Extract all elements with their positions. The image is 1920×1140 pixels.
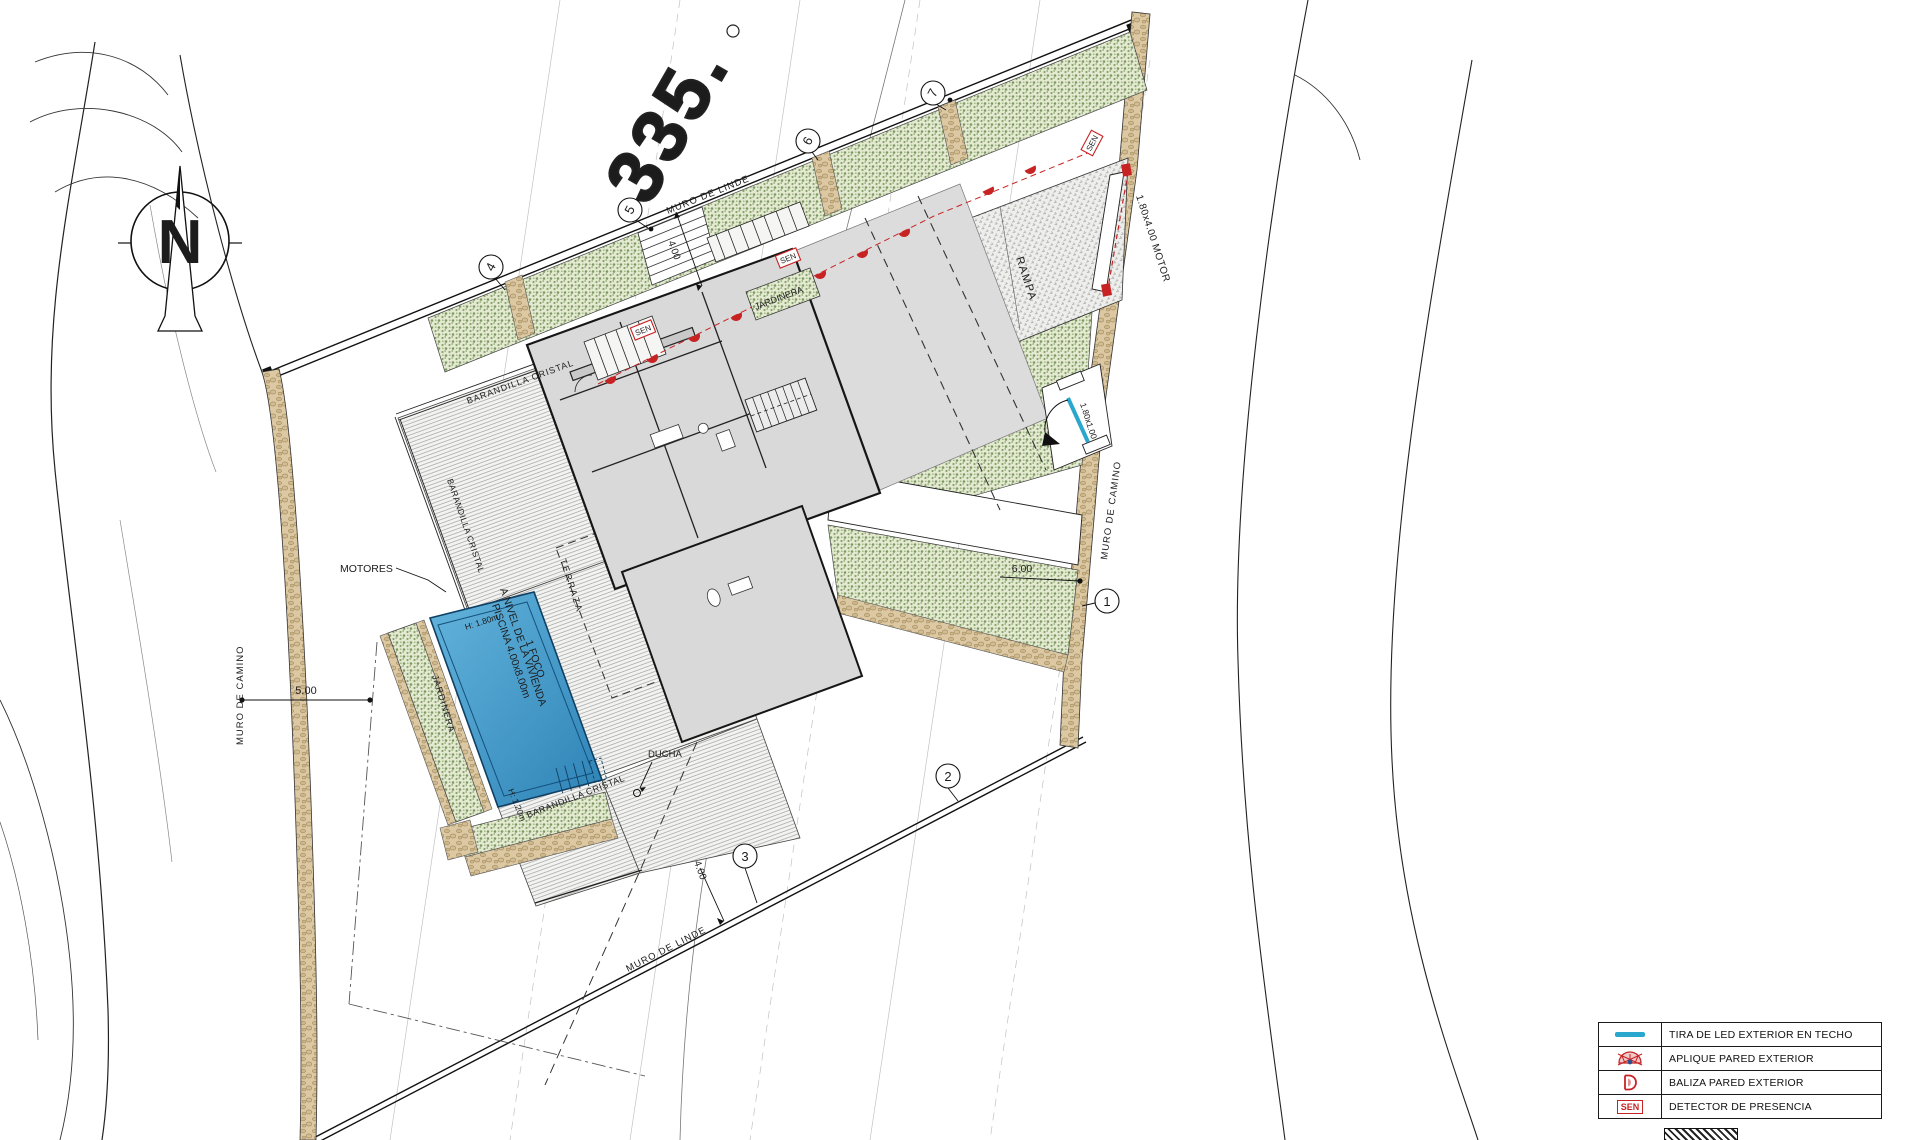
led-strip-icon: [1599, 1023, 1662, 1046]
dim-left: 5.00: [295, 685, 316, 697]
sen-icon-text: SEN: [1617, 1100, 1644, 1114]
marker-1: 1: [1103, 594, 1110, 609]
legend-row-led: TIRA DE LED EXTERIOR EN TECHO: [1599, 1023, 1881, 1046]
elevation-dot: [727, 25, 739, 37]
legend-label: DETECTOR DE PRESENCIA: [1662, 1095, 1881, 1118]
legend-label: APLIQUE PARED EXTERIOR: [1662, 1047, 1881, 1070]
marker-2: 2: [944, 769, 951, 784]
legend-label: BALIZA PARED EXTERIOR: [1662, 1071, 1881, 1094]
legend-row-aplique: APLIQUE PARED EXTERIOR: [1599, 1046, 1881, 1070]
left-stone-wall: [262, 369, 317, 1140]
baliza-icon: [1599, 1071, 1662, 1094]
wall-label-left: MURO DE CAMINO: [235, 646, 246, 746]
legend-row-baliza: BALIZA PARED EXTERIOR: [1599, 1070, 1881, 1094]
wall-label-right: MURO DE CAMINO: [1099, 460, 1124, 560]
lighting-legend: TIRA DE LED EXTERIOR EN TECHO APLIQUE PA…: [1598, 1022, 1882, 1119]
site-plan-drawing: 335. N: [0, 0, 1920, 1140]
sen-icon: SEN: [1599, 1095, 1662, 1118]
wall-label-bottom: MURO DE LINDE: [624, 925, 708, 975]
site-plan-canvas: 335. N: [0, 0, 1920, 1140]
legend-label: TIRA DE LED EXTERIOR EN TECHO: [1662, 1023, 1881, 1046]
motores-label: MOTORES: [340, 563, 393, 575]
north-letter: N: [158, 208, 203, 277]
legend-row-sen: SEN DETECTOR DE PRESENCIA: [1599, 1094, 1881, 1118]
marker-3: 3: [741, 849, 748, 864]
dim-right: 6.00: [1012, 563, 1033, 575]
ducha-label: DUCHA: [648, 749, 682, 760]
motor-gate-label: 1.80x4.00 MOTOR: [1133, 194, 1172, 284]
aplique-icon: [1599, 1047, 1662, 1070]
legend-continuation-box: [1664, 1128, 1738, 1140]
